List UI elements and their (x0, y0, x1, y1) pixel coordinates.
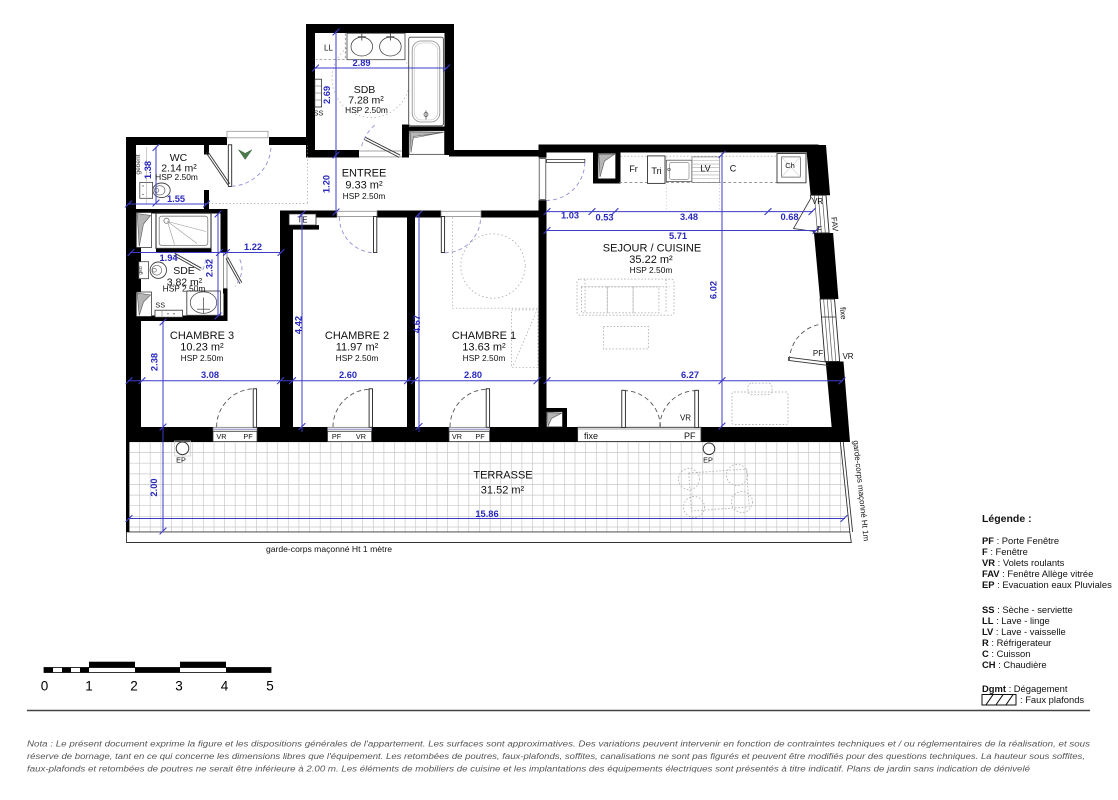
svg-text:VR: VR (680, 414, 691, 423)
svg-text:3.08: 3.08 (201, 370, 219, 380)
svg-text:SEJOUR / CUISINE: SEJOUR / CUISINE (603, 243, 701, 255)
svg-text:PF : Porte Fenêtre: PF : Porte Fenêtre (982, 535, 1059, 546)
svg-text:C: C (730, 164, 737, 174)
svg-text:10.23 m²: 10.23 m² (180, 342, 224, 354)
svg-text:3.48: 3.48 (680, 212, 698, 222)
svg-text:Ch: Ch (785, 161, 795, 170)
svg-text:fixe: fixe (584, 431, 598, 441)
svg-text:CHAMBRE 2: CHAMBRE 2 (325, 330, 389, 342)
svg-text:1.55: 1.55 (167, 194, 185, 204)
svg-text:2.69: 2.69 (322, 86, 332, 104)
svg-text:C : Cuisson: C : Cuisson (982, 648, 1030, 659)
svg-text:VR: VR (216, 432, 226, 441)
svg-text:garde-corps maçonné Ht 1 mètre: garde-corps maçonné Ht 1 mètre (266, 544, 392, 554)
svg-text:F: F (817, 225, 822, 234)
svg-text:5: 5 (266, 679, 274, 694)
svg-text:HSP 2.50m: HSP 2.50m (463, 353, 506, 363)
svg-text:6.02: 6.02 (708, 281, 718, 299)
svg-text:F : Fenêtre: F : Fenêtre (982, 546, 1028, 557)
svg-text:4.42: 4.42 (293, 316, 303, 334)
svg-text:LL: LL (324, 44, 333, 53)
svg-text:EP: EP (176, 456, 186, 465)
svg-text:2.89: 2.89 (352, 58, 370, 68)
svg-text:PF: PF (684, 431, 696, 441)
svg-text:VR: VR (842, 352, 853, 361)
svg-text:EP: EP (703, 456, 713, 465)
svg-text:Nota : Le présent document exp: Nota : Le présent document exprime la fi… (27, 740, 1090, 749)
svg-text:EP : Evacuation eaux Pluviales: EP : Evacuation eaux Pluviales (982, 579, 1112, 590)
svg-text:0.53: 0.53 (595, 213, 613, 223)
svg-text:LL : Lave - linge: LL : Lave - linge (982, 615, 1050, 626)
svg-text:1.22: 1.22 (244, 242, 262, 252)
svg-text:VR: VR (812, 197, 823, 206)
svg-text:2.38: 2.38 (149, 353, 159, 371)
svg-text:2.80: 2.80 (464, 370, 482, 380)
svg-text:PF: PF (813, 349, 823, 358)
svg-text:Légende :: Légende : (982, 513, 1032, 525)
svg-text:HSP 2.50m: HSP 2.50m (345, 105, 388, 115)
svg-text:4.67: 4.67 (412, 315, 422, 333)
svg-text:LV : Lave - vaisselle: LV : Lave - vaisselle (982, 626, 1066, 637)
svg-text:R : Réfrigerateur: R : Réfrigerateur (982, 637, 1051, 648)
svg-text:TERRASSE: TERRASSE (473, 470, 532, 482)
svg-text:SS: SS (155, 301, 165, 310)
svg-text:5.71: 5.71 (669, 231, 687, 241)
svg-text:Fr: Fr (629, 164, 638, 174)
svg-text:1.94: 1.94 (159, 253, 178, 263)
svg-text:9.33 m²: 9.33 m² (345, 179, 383, 191)
svg-text:0: 0 (41, 679, 49, 694)
svg-text:1: 1 (85, 679, 93, 694)
svg-text:SDE: SDE (173, 265, 195, 277)
svg-text:0.68: 0.68 (780, 212, 798, 222)
svg-text:FAV: FAV (829, 217, 840, 233)
svg-text:2.32: 2.32 (204, 259, 214, 277)
svg-text:SS: SS (314, 109, 324, 118)
svg-text:31.52 m²: 31.52 m² (481, 484, 525, 496)
svg-text:2.00: 2.00 (149, 478, 159, 496)
svg-text:13.63 m²: 13.63 m² (462, 342, 506, 354)
svg-text:4: 4 (221, 679, 229, 694)
svg-text:ENTREE: ENTREE (342, 168, 387, 180)
svg-text:HSP 2.50m: HSP 2.50m (155, 172, 198, 182)
svg-text:PF: PF (243, 432, 253, 441)
svg-text:HSP 2.50m: HSP 2.50m (630, 265, 673, 275)
svg-text:CH : Chaudière: CH : Chaudière (982, 659, 1047, 670)
svg-text:3: 3 (175, 679, 183, 694)
svg-text:11.97 m²: 11.97 m² (336, 342, 379, 354)
svg-text:HSP 2.50m: HSP 2.50m (163, 284, 206, 294)
svg-text:Tri: Tri (651, 166, 661, 176)
svg-text:1.20: 1.20 (321, 175, 331, 193)
svg-text:SS : Sèche - serviette: SS : Sèche - serviette (982, 604, 1073, 615)
svg-text:FAV : Fenêtre Allège vitrée: FAV : Fenêtre Allège vitrée (982, 568, 1093, 579)
svg-text:VR: VR (356, 432, 366, 441)
svg-text:PF: PF (332, 432, 342, 441)
svg-text:2: 2 (130, 679, 138, 694)
svg-text:1.38: 1.38 (143, 161, 153, 179)
svg-text:CHAMBRE 1: CHAMBRE 1 (452, 330, 516, 342)
svg-text:15.86: 15.86 (475, 509, 498, 519)
svg-text:réserve de bornage, tant en ce: réserve de bornage, tant en ce qui conce… (27, 752, 1085, 761)
svg-text:HSP 2.50m: HSP 2.50m (343, 191, 386, 201)
svg-text:VR : Volets roulants: VR : Volets roulants (982, 557, 1065, 568)
svg-text:HSP 2.50m: HSP 2.50m (181, 353, 224, 363)
svg-text:6.27: 6.27 (681, 370, 699, 380)
svg-text:faux-plafonds et retombées de: faux-plafonds et retombées de poutres ne… (27, 765, 1031, 774)
svg-text:HSP 2.50m: HSP 2.50m (336, 353, 379, 363)
svg-text:CHAMBRE 3: CHAMBRE 3 (170, 330, 234, 342)
svg-text:geberit: geberit (135, 154, 142, 174)
svg-text:PF: PF (475, 432, 485, 441)
svg-text:LV: LV (700, 164, 710, 174)
svg-text:fixe: fixe (838, 307, 848, 321)
svg-text:1.03: 1.03 (561, 210, 579, 220)
svg-text:VR: VR (452, 432, 462, 441)
svg-text:geb: geb (138, 266, 144, 275)
svg-text:Dgmt : Dégagement: Dgmt : Dégagement (982, 683, 1068, 694)
svg-text:2.60: 2.60 (339, 370, 357, 380)
svg-text:: Faux plafonds: : Faux plafonds (1020, 694, 1084, 705)
